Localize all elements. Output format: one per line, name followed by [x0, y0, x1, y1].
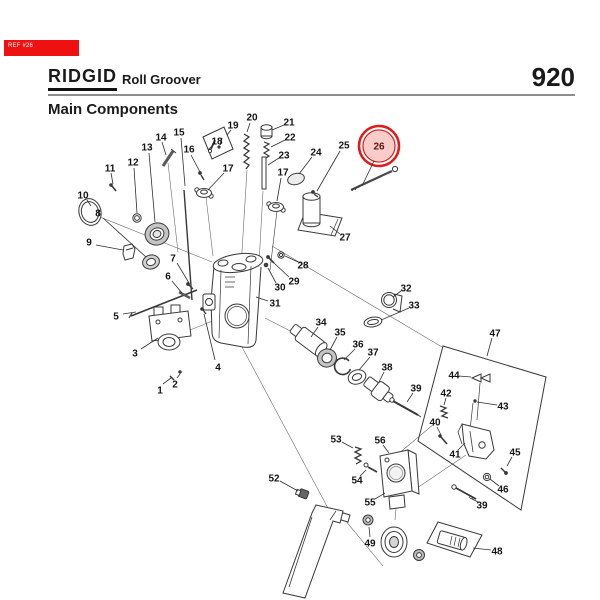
- callout-number: 14: [155, 133, 167, 144]
- leader-line: [274, 263, 289, 277]
- callout-number: 2: [172, 380, 178, 391]
- callout-number: 9: [86, 238, 92, 249]
- part-39-pin-bottom: [452, 485, 476, 499]
- callout-number: 7: [170, 254, 176, 265]
- callout-number: 5: [113, 312, 119, 323]
- callout-number: 18: [211, 137, 223, 148]
- part-8-ring: [141, 253, 161, 271]
- part-52-knob: [295, 488, 309, 500]
- callout-number: 47: [489, 329, 501, 340]
- callout-number: 4: [215, 363, 221, 374]
- callout-number: 29: [288, 277, 300, 288]
- callout-number: 53: [330, 435, 342, 446]
- callout-number: 39: [476, 501, 488, 512]
- callout-number: 6: [165, 272, 171, 283]
- leader-line: [379, 372, 384, 382]
- page: REF #26 RIDGID Roll Groover 920 Main Com…: [0, 0, 600, 600]
- callout-number: 55: [364, 498, 376, 509]
- leader-line: [271, 140, 285, 147]
- leader-line: [487, 338, 492, 356]
- part-31-housing: [203, 251, 264, 348]
- part-42-spring: [440, 406, 448, 418]
- callout-number: 16: [183, 145, 195, 156]
- part-9-clip: [123, 244, 135, 260]
- callout-number: 22: [284, 133, 296, 144]
- part-17-wingnut-right: [267, 202, 285, 270]
- callout-number: 21: [283, 118, 295, 129]
- part-56-block: [380, 450, 419, 509]
- callout-number: 35: [334, 328, 346, 339]
- part-53-spring: [355, 447, 361, 464]
- callout-number: 23: [278, 151, 290, 162]
- part-48-roll-box: [427, 522, 482, 557]
- callout-number: 24: [310, 148, 322, 159]
- leader-line: [111, 173, 113, 184]
- leader-line: [330, 337, 337, 350]
- callout-number: 49: [364, 539, 376, 550]
- callout-number: 12: [127, 158, 139, 169]
- callout-number: 36: [352, 340, 364, 351]
- callout-number: 17: [277, 168, 289, 179]
- leader-line: [247, 123, 250, 132]
- callout-number: 42: [440, 389, 452, 400]
- part-22-spring: [264, 142, 269, 158]
- leader-line: [123, 312, 136, 314]
- leader-line: [459, 376, 471, 377]
- callout-number: 3: [132, 349, 138, 360]
- part-40-pin: [439, 435, 447, 444]
- part-21-capnut: [261, 125, 272, 139]
- leader-line: [369, 527, 370, 537]
- callout-number: 31: [269, 299, 281, 310]
- callout-number: 44: [448, 371, 460, 382]
- leader-line: [191, 155, 200, 172]
- callout-number: 20: [246, 113, 258, 124]
- leader-line: [342, 442, 353, 448]
- part-41-yoke: [458, 424, 494, 459]
- leader-line: [272, 125, 284, 130]
- callout-number: 11: [105, 164, 116, 175]
- callout-number: 54: [351, 476, 363, 487]
- callout-number: 19: [227, 121, 239, 132]
- part-7-screw: [187, 283, 193, 289]
- part-24-pad: [286, 171, 305, 186]
- part-39-pin-mid: [390, 398, 421, 417]
- leader-line: [268, 158, 279, 165]
- part-43-pin: [470, 400, 476, 430]
- leader-line: [134, 168, 137, 213]
- callout-number: 1: [157, 386, 163, 397]
- callout-number: 34: [315, 318, 327, 329]
- leader-line: [96, 245, 123, 250]
- leader-line: [359, 357, 370, 370]
- callout-number: 27: [339, 233, 351, 244]
- leader-line: [280, 481, 298, 491]
- callout-number: 56: [374, 436, 386, 447]
- callout-number: 13: [141, 143, 153, 154]
- part-45-screw: [501, 468, 507, 474]
- callout-number: 46: [497, 485, 509, 496]
- callout-number: 15: [173, 128, 185, 139]
- callout-number: 28: [297, 261, 309, 272]
- callout-number: 40: [429, 418, 441, 429]
- leader-line: [162, 142, 166, 155]
- leader-line: [473, 548, 491, 550]
- callout-number: 39: [410, 384, 422, 395]
- leader-line: [177, 374, 180, 378]
- leader-line: [477, 402, 497, 405]
- part-28-29-30-screws: [264, 252, 284, 267]
- callout-number: 33: [408, 301, 420, 312]
- part-32-clamp: [382, 293, 403, 313]
- callout-number: 43: [497, 402, 509, 413]
- exploded-diagram: 1234567891011121314151617171819202122232…: [0, 0, 600, 600]
- callout-number: 30: [274, 283, 286, 294]
- leader-line: [177, 263, 189, 283]
- leader-line: [277, 178, 281, 201]
- part-36-retaining-ring: [335, 358, 351, 374]
- callout-number: 8: [95, 209, 101, 220]
- callout-number: 25: [338, 141, 350, 152]
- part-46-washer: [483, 473, 490, 480]
- part-3-carriage: [149, 305, 191, 350]
- part-feed-handle: [283, 505, 350, 598]
- part-33-ring: [363, 316, 382, 329]
- part-27-bracket: [298, 193, 342, 236]
- callout-number: 10: [77, 191, 89, 202]
- callout-number: 52: [268, 474, 280, 485]
- part-23-pin: [262, 157, 266, 189]
- leader-line: [344, 349, 355, 360]
- part-44-wing: [472, 374, 490, 420]
- part-26-handle-rod: [351, 166, 398, 191]
- leader-line: [285, 256, 298, 262]
- leader-line: [163, 378, 171, 384]
- callout-number: 32: [400, 284, 412, 295]
- callout-number: 48: [491, 547, 503, 558]
- leader-line: [299, 157, 312, 174]
- leader-line: [149, 153, 155, 222]
- callout-number: 17: [222, 164, 234, 175]
- part-54-screw: [364, 463, 377, 472]
- leader-line: [172, 281, 182, 293]
- construction-lines: [95, 163, 466, 566]
- parts-layer: [76, 125, 546, 598]
- callout-number: 26: [373, 142, 385, 153]
- callout-number: 38: [381, 363, 393, 374]
- leader-line: [208, 173, 224, 190]
- part-17-wingnut-left: [195, 188, 213, 198]
- part-12-ring: [133, 214, 141, 222]
- callout-number: 37: [367, 348, 379, 359]
- part-11-screw: [110, 184, 116, 191]
- leader-line: [141, 338, 158, 349]
- part-20-spring: [244, 134, 249, 169]
- callout-number: 41: [449, 450, 461, 461]
- leader-line: [268, 268, 276, 283]
- callout-number: 45: [509, 448, 521, 459]
- part-16-screw: [199, 172, 204, 180]
